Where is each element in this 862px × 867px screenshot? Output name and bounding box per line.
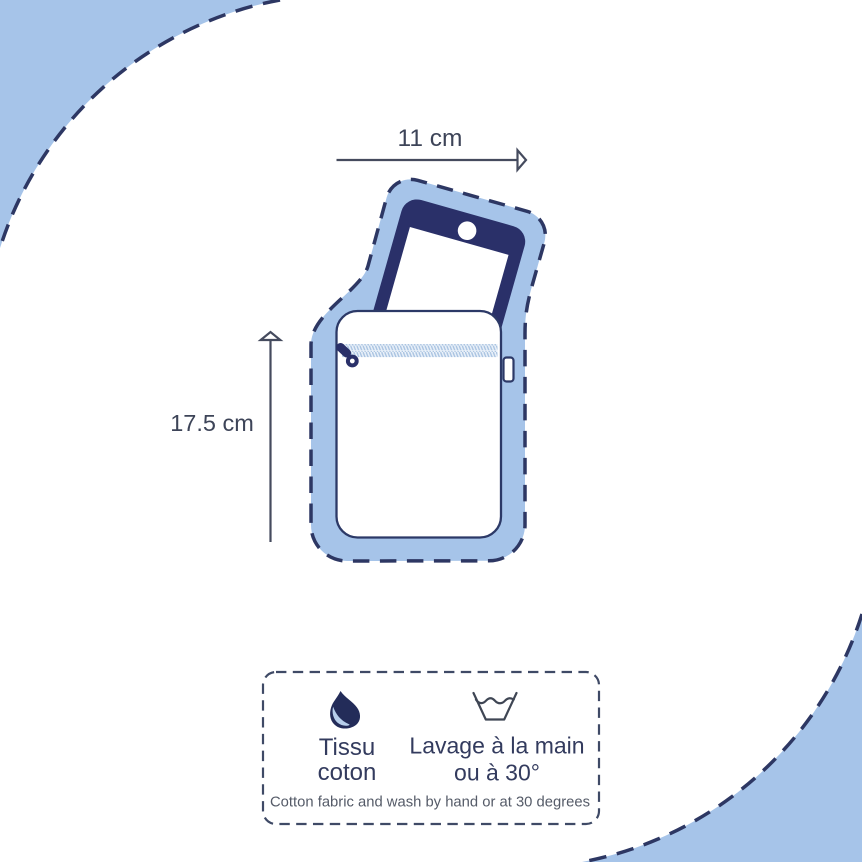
svg-text:ou à 30°: ou à 30° bbox=[454, 760, 540, 786]
svg-text:Lavage à la main: Lavage à la main bbox=[409, 733, 584, 759]
svg-text:Tissu: Tissu bbox=[319, 734, 375, 761]
svg-text:coton: coton bbox=[318, 759, 377, 786]
svg-text:11 cm: 11 cm bbox=[398, 125, 463, 152]
svg-text:17.5 cm: 17.5 cm bbox=[170, 410, 254, 436]
svg-text:Cotton fabric and wash by hand: Cotton fabric and wash by hand or at 30 … bbox=[270, 795, 590, 811]
